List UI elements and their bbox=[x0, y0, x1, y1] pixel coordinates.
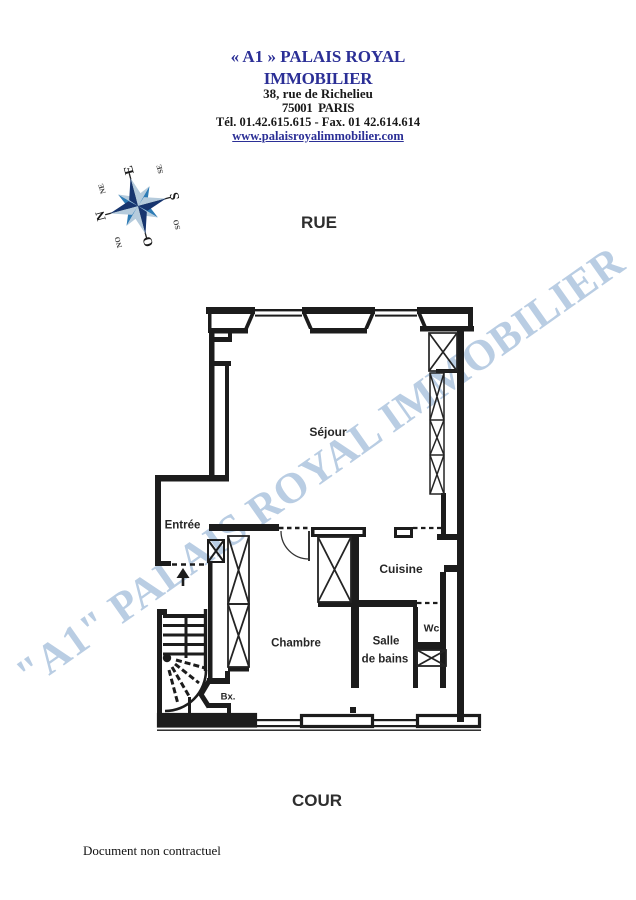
svg-text:Chambre: Chambre bbox=[271, 638, 321, 650]
svg-text:NE: NE bbox=[96, 183, 107, 195]
svg-text:Salle: Salle bbox=[373, 636, 400, 648]
svg-text:"A1" PALAIS ROYAL IMMOBILIER: "A1" PALAIS ROYAL IMMOBILIER bbox=[8, 238, 634, 699]
svg-text:O: O bbox=[139, 235, 156, 249]
svg-text:Séjour: Séjour bbox=[309, 425, 347, 439]
svg-text:Wc: Wc bbox=[424, 623, 440, 635]
svg-text:Bx.: Bx. bbox=[221, 692, 236, 703]
svg-text:Entrée: Entrée bbox=[165, 520, 201, 532]
svg-text:SO: SO bbox=[171, 218, 182, 230]
svg-text:N: N bbox=[92, 209, 109, 223]
svg-text:SE: SE bbox=[154, 164, 165, 175]
svg-text:E: E bbox=[120, 164, 137, 176]
svg-text:NO: NO bbox=[112, 236, 124, 249]
svg-text:Cuisine: Cuisine bbox=[379, 562, 423, 576]
svg-text:S: S bbox=[166, 191, 182, 202]
svg-text:de bains: de bains bbox=[362, 654, 409, 666]
